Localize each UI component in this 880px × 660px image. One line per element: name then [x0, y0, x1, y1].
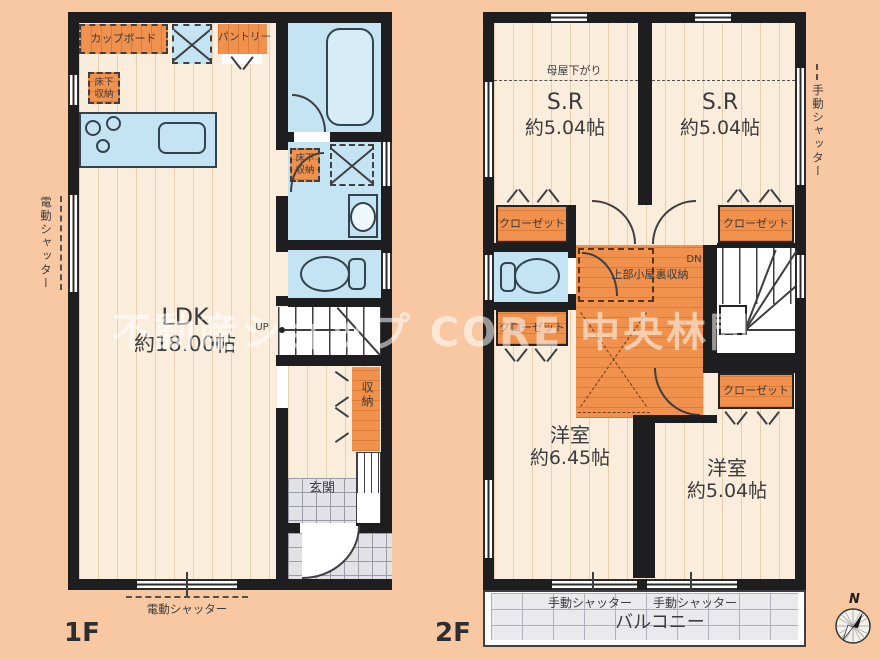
closet-top-right: クローゼット [718, 205, 794, 243]
refrigerator-space [172, 24, 212, 64]
folding-door-chevron [726, 411, 746, 424]
window [381, 253, 392, 289]
western-room-2-label: 洋室 約5.04帖 [672, 456, 782, 510]
wall [288, 240, 381, 250]
electric-shutter-left-label: 電動シャッター [38, 196, 54, 300]
stairs-up-label: UP [248, 322, 276, 334]
hall-storage: 収納 [352, 367, 380, 451]
shutter-dash-line [126, 596, 248, 598]
folding-door-chevron [760, 190, 780, 203]
closet-mid-right: クローゼット [718, 373, 794, 409]
shoe-step [356, 452, 381, 532]
door-opening [568, 258, 576, 294]
stove-burner [85, 120, 101, 136]
window [68, 75, 79, 105]
folding-door-chevron [336, 416, 349, 434]
folding-door-chevron [536, 348, 556, 361]
stove-burner [96, 139, 110, 153]
floor-label-1f: 1F [64, 618, 100, 648]
compass-n-label: N [849, 592, 860, 607]
window [381, 142, 392, 186]
window [647, 579, 737, 590]
pantry-door-chevron [232, 56, 252, 69]
western-room-1-label: 洋室 約6.45帖 [515, 423, 625, 477]
ldk-name: LDK [110, 303, 260, 332]
shutter-dash-line [60, 196, 62, 290]
manual-shutter-2-label: 手動シャッター [645, 596, 745, 610]
bathtub [326, 28, 374, 126]
pantry-label: パントリー [218, 31, 271, 43]
pantry: パントリー [218, 24, 267, 54]
window [552, 579, 637, 590]
underfloor-storage-kitchen-label: 床下収納 [94, 77, 113, 100]
floor-label-2f: 2F [435, 618, 471, 648]
ldk-size: 約18.00帖 [110, 332, 260, 358]
wall [703, 245, 717, 353]
toilet-bowl [300, 256, 350, 292]
window [68, 195, 79, 292]
sr-right-label: S.R 約5.04帖 [668, 90, 772, 144]
stairs-up-line [284, 329, 354, 331]
stove-burner [106, 116, 121, 131]
wall [276, 355, 381, 366]
door-opening [294, 132, 330, 142]
closet-mid-left: クローゼット [496, 310, 568, 346]
wall [276, 23, 288, 150]
electric-shutter-bottom-label: 電動シャッター [126, 602, 248, 618]
window [483, 480, 494, 558]
moya-sagari-line [494, 80, 638, 82]
compass: N [832, 592, 878, 650]
window [795, 68, 806, 185]
wall [276, 408, 288, 580]
stairs-landing [719, 305, 747, 335]
shutter-dash-line [816, 64, 818, 80]
wall [633, 415, 655, 578]
cupboard: カップボード [79, 24, 168, 54]
folding-door-chevron [538, 190, 558, 203]
wall [276, 296, 288, 306]
window [551, 12, 587, 23]
wall [494, 302, 576, 310]
window [483, 255, 494, 300]
hall-opening [277, 363, 288, 408]
stairs-1f [278, 307, 381, 355]
floorplan-canvas: カップボード パントリー 床下収納 LDK 約18.00帖 床下収納 UP 収納 [0, 0, 880, 660]
folding-door-chevron [508, 190, 528, 203]
moya-sagari-line [652, 80, 795, 82]
wall [494, 243, 573, 252]
ldk-room-label: LDK 約18.00帖 [110, 303, 260, 365]
compass-rose-icon [833, 606, 873, 646]
closet-top-left: クローゼット [496, 205, 568, 243]
moya-sagari-label: 母屋下がり [534, 64, 614, 78]
wall [288, 298, 381, 307]
folding-door-chevron [336, 380, 349, 398]
hall-dashed-edge [578, 412, 650, 414]
window [795, 255, 806, 298]
wall [568, 205, 576, 252]
toilet-tank [348, 258, 366, 290]
manual-shutter-1-label: 手動シャッター [540, 596, 640, 610]
window-tick [186, 572, 188, 596]
toilet-bowl [514, 258, 560, 294]
attic-storage-label: 上部小屋裏収納 [596, 268, 704, 282]
wall [638, 23, 652, 205]
folding-door-chevron [506, 348, 526, 361]
balcony-label: バルコニー [590, 612, 730, 634]
washbasin [350, 202, 376, 232]
sr-left-label: S.R 約5.04帖 [515, 90, 615, 144]
manual-shutter-right-label: 手動シャッター [810, 84, 826, 208]
folding-door-chevron [758, 411, 778, 424]
wall [703, 353, 795, 373]
folding-door-chevron [728, 190, 748, 203]
attic-storage-x [578, 306, 650, 412]
entrance-label: 玄関 [294, 481, 350, 499]
window [695, 12, 731, 23]
kitchen-sink [158, 122, 206, 154]
underfloor-storage-kitchen: 床下収納 [88, 72, 120, 104]
wall [276, 196, 288, 252]
stairs-fan-line [744, 329, 795, 331]
wall [655, 415, 717, 423]
cupboard-label: カップボード [91, 32, 157, 45]
window [483, 82, 494, 177]
washer-space [330, 144, 374, 186]
hall-storage-label: 収納 [359, 381, 376, 409]
